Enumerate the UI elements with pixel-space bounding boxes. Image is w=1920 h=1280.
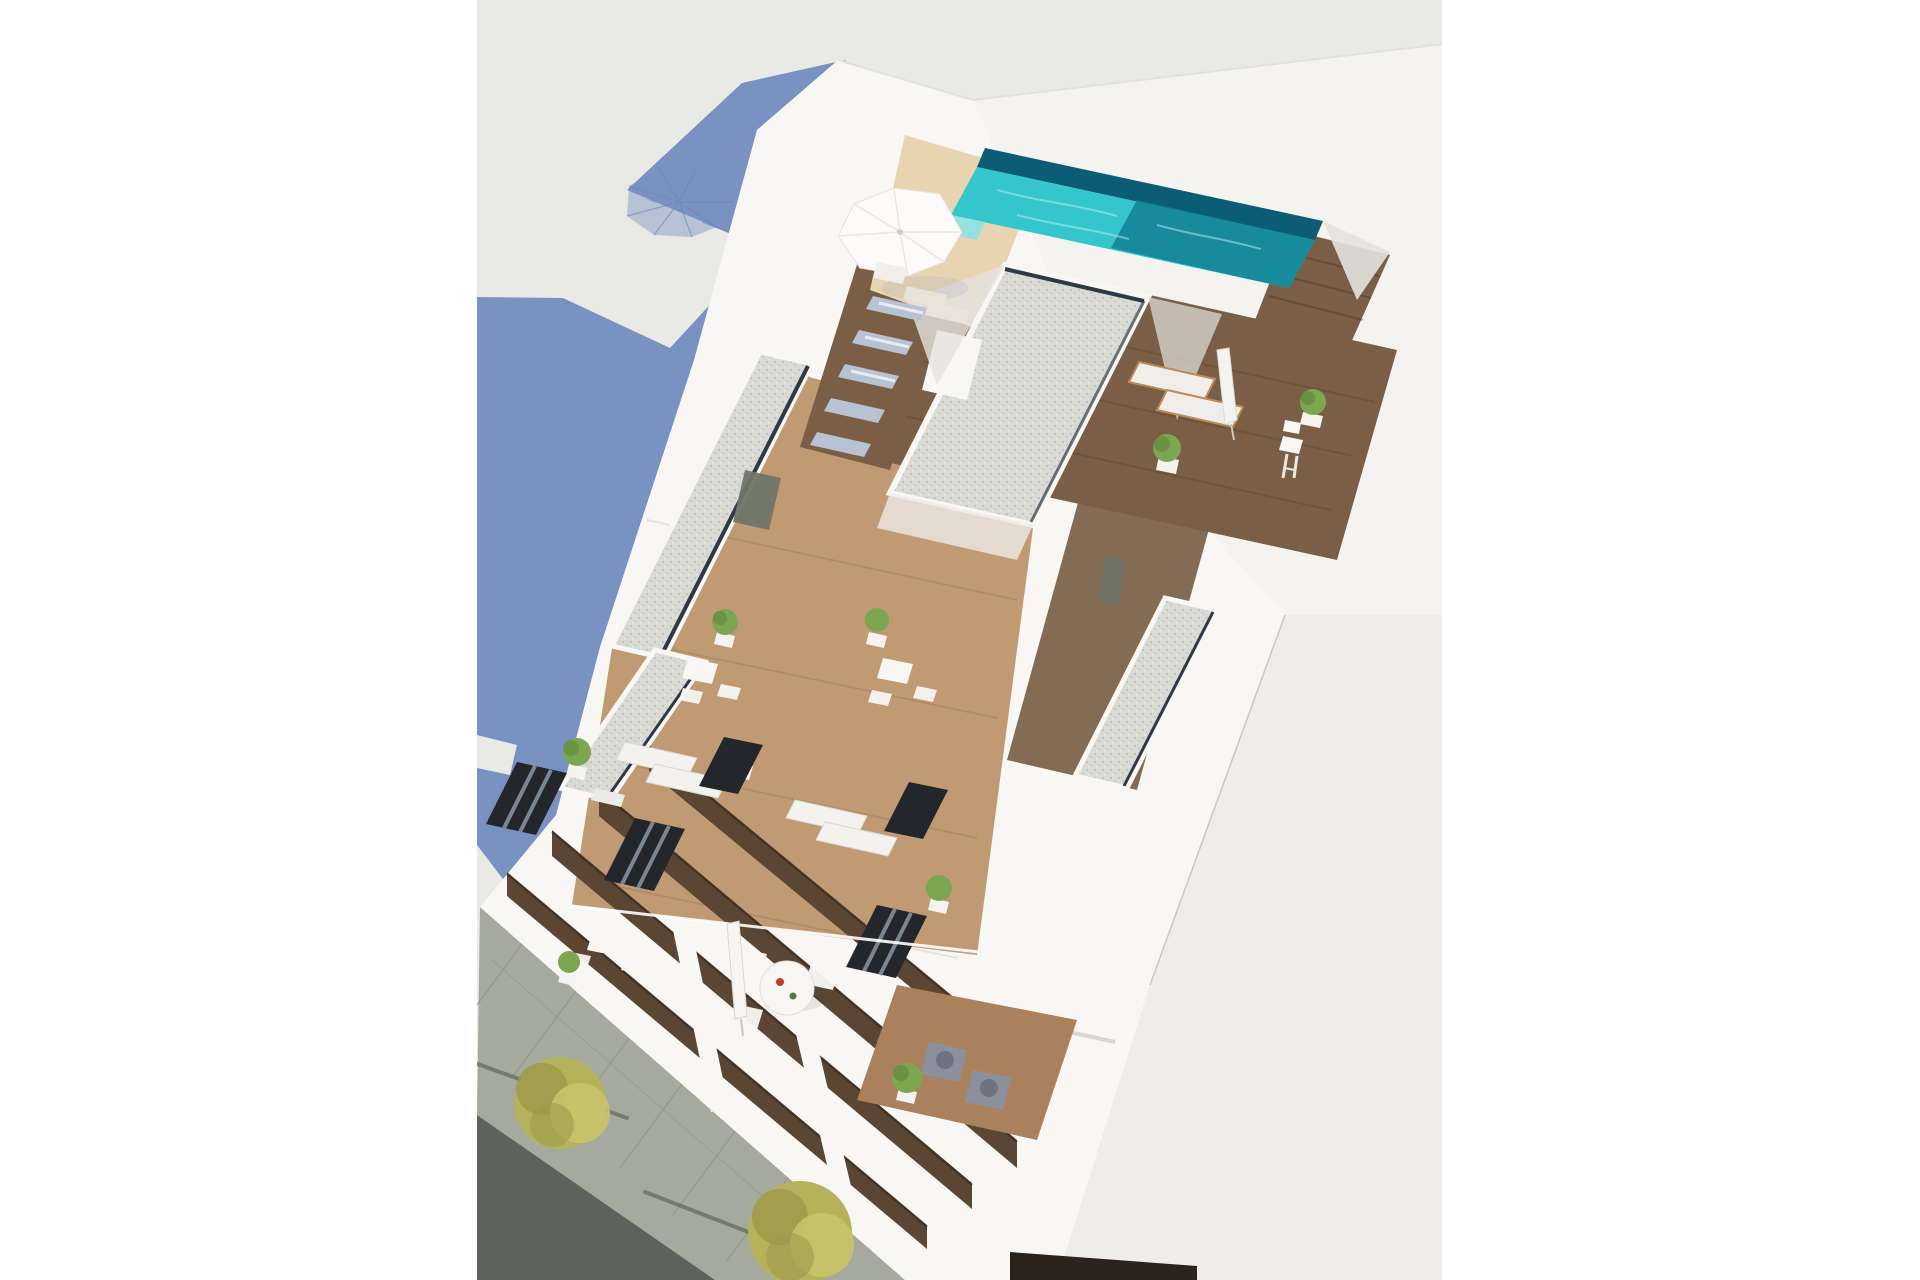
render-scene [477, 0, 1442, 1280]
plant-foliage [558, 951, 580, 973]
round-table [760, 961, 814, 1015]
render-image [477, 0, 1442, 1280]
armchair-cushion [980, 1079, 998, 1097]
potted-plant [1153, 434, 1181, 474]
page-canvas [0, 0, 1920, 1280]
armchair-cushion [936, 1051, 954, 1069]
plant-foliage [865, 608, 889, 632]
plant-foliage-dark [1154, 436, 1170, 452]
plant-foliage-dark [893, 1065, 909, 1081]
umbrella-shadow-hub [645, 185, 673, 203]
table-decor-green [790, 993, 797, 1000]
plant-foliage-dark [713, 611, 727, 625]
parasol-pole-top [897, 229, 903, 235]
plant-foliage-dark [1301, 391, 1315, 405]
table-decor-red [776, 978, 784, 986]
plant-foliage [926, 875, 952, 901]
plant-foliage-dark [563, 740, 579, 756]
